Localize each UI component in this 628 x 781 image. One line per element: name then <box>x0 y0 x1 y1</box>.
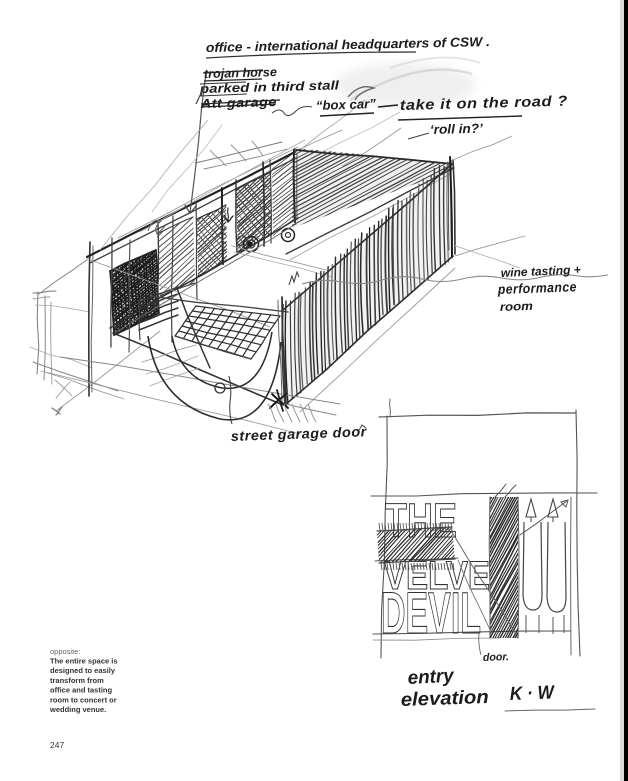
svg-text:opposite:: opposite: <box>50 647 80 656</box>
svg-text:performance: performance <box>497 279 577 297</box>
svg-text:DEVIL: DEVIL <box>381 581 481 646</box>
svg-text:transform from: transform from <box>50 676 104 685</box>
svg-text:wedding venue.: wedding venue. <box>49 705 106 714</box>
svg-text:247: 247 <box>50 740 64 750</box>
svg-text:‘roll in?’: ‘roll in?’ <box>430 121 484 137</box>
svg-text:elevation: elevation <box>400 687 489 711</box>
svg-text:The entire space is: The entire space is <box>50 657 118 666</box>
svg-text:trojan horse: trojan horse <box>204 65 277 81</box>
svg-text:room to concert or: room to concert or <box>50 695 117 704</box>
svg-text:“box car”: “box car” <box>316 96 377 113</box>
svg-text:office and tasting: office and tasting <box>50 686 113 695</box>
svg-text:K · W: K · W <box>509 682 556 705</box>
svg-text:room: room <box>500 299 534 314</box>
svg-text:door.: door. <box>483 651 509 664</box>
svg-text:entry: entry <box>407 666 455 689</box>
svg-text:designed to easily: designed to easily <box>50 666 116 675</box>
